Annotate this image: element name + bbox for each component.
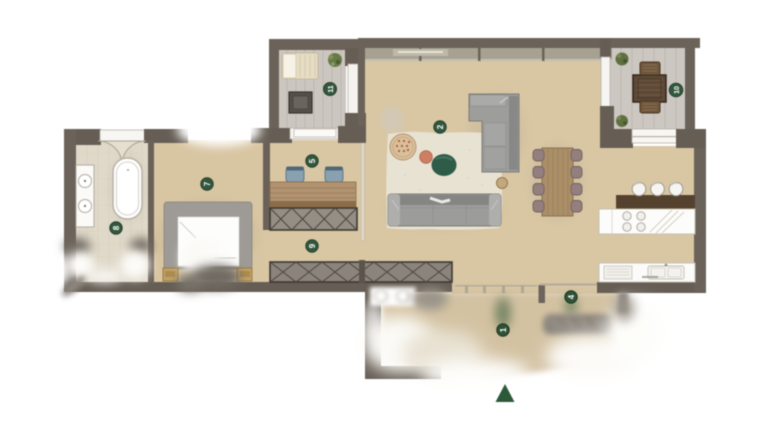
svg-text:8: 8 [112,225,121,230]
svg-text:4: 4 [567,294,576,299]
svg-text:11: 11 [328,85,335,93]
svg-text:9: 9 [308,243,317,248]
svg-text:1: 1 [499,327,508,332]
svg-text:5: 5 [308,158,317,163]
svg-text:10: 10 [674,86,681,94]
svg-text:7: 7 [203,181,212,186]
svg-text:2: 2 [436,124,445,129]
